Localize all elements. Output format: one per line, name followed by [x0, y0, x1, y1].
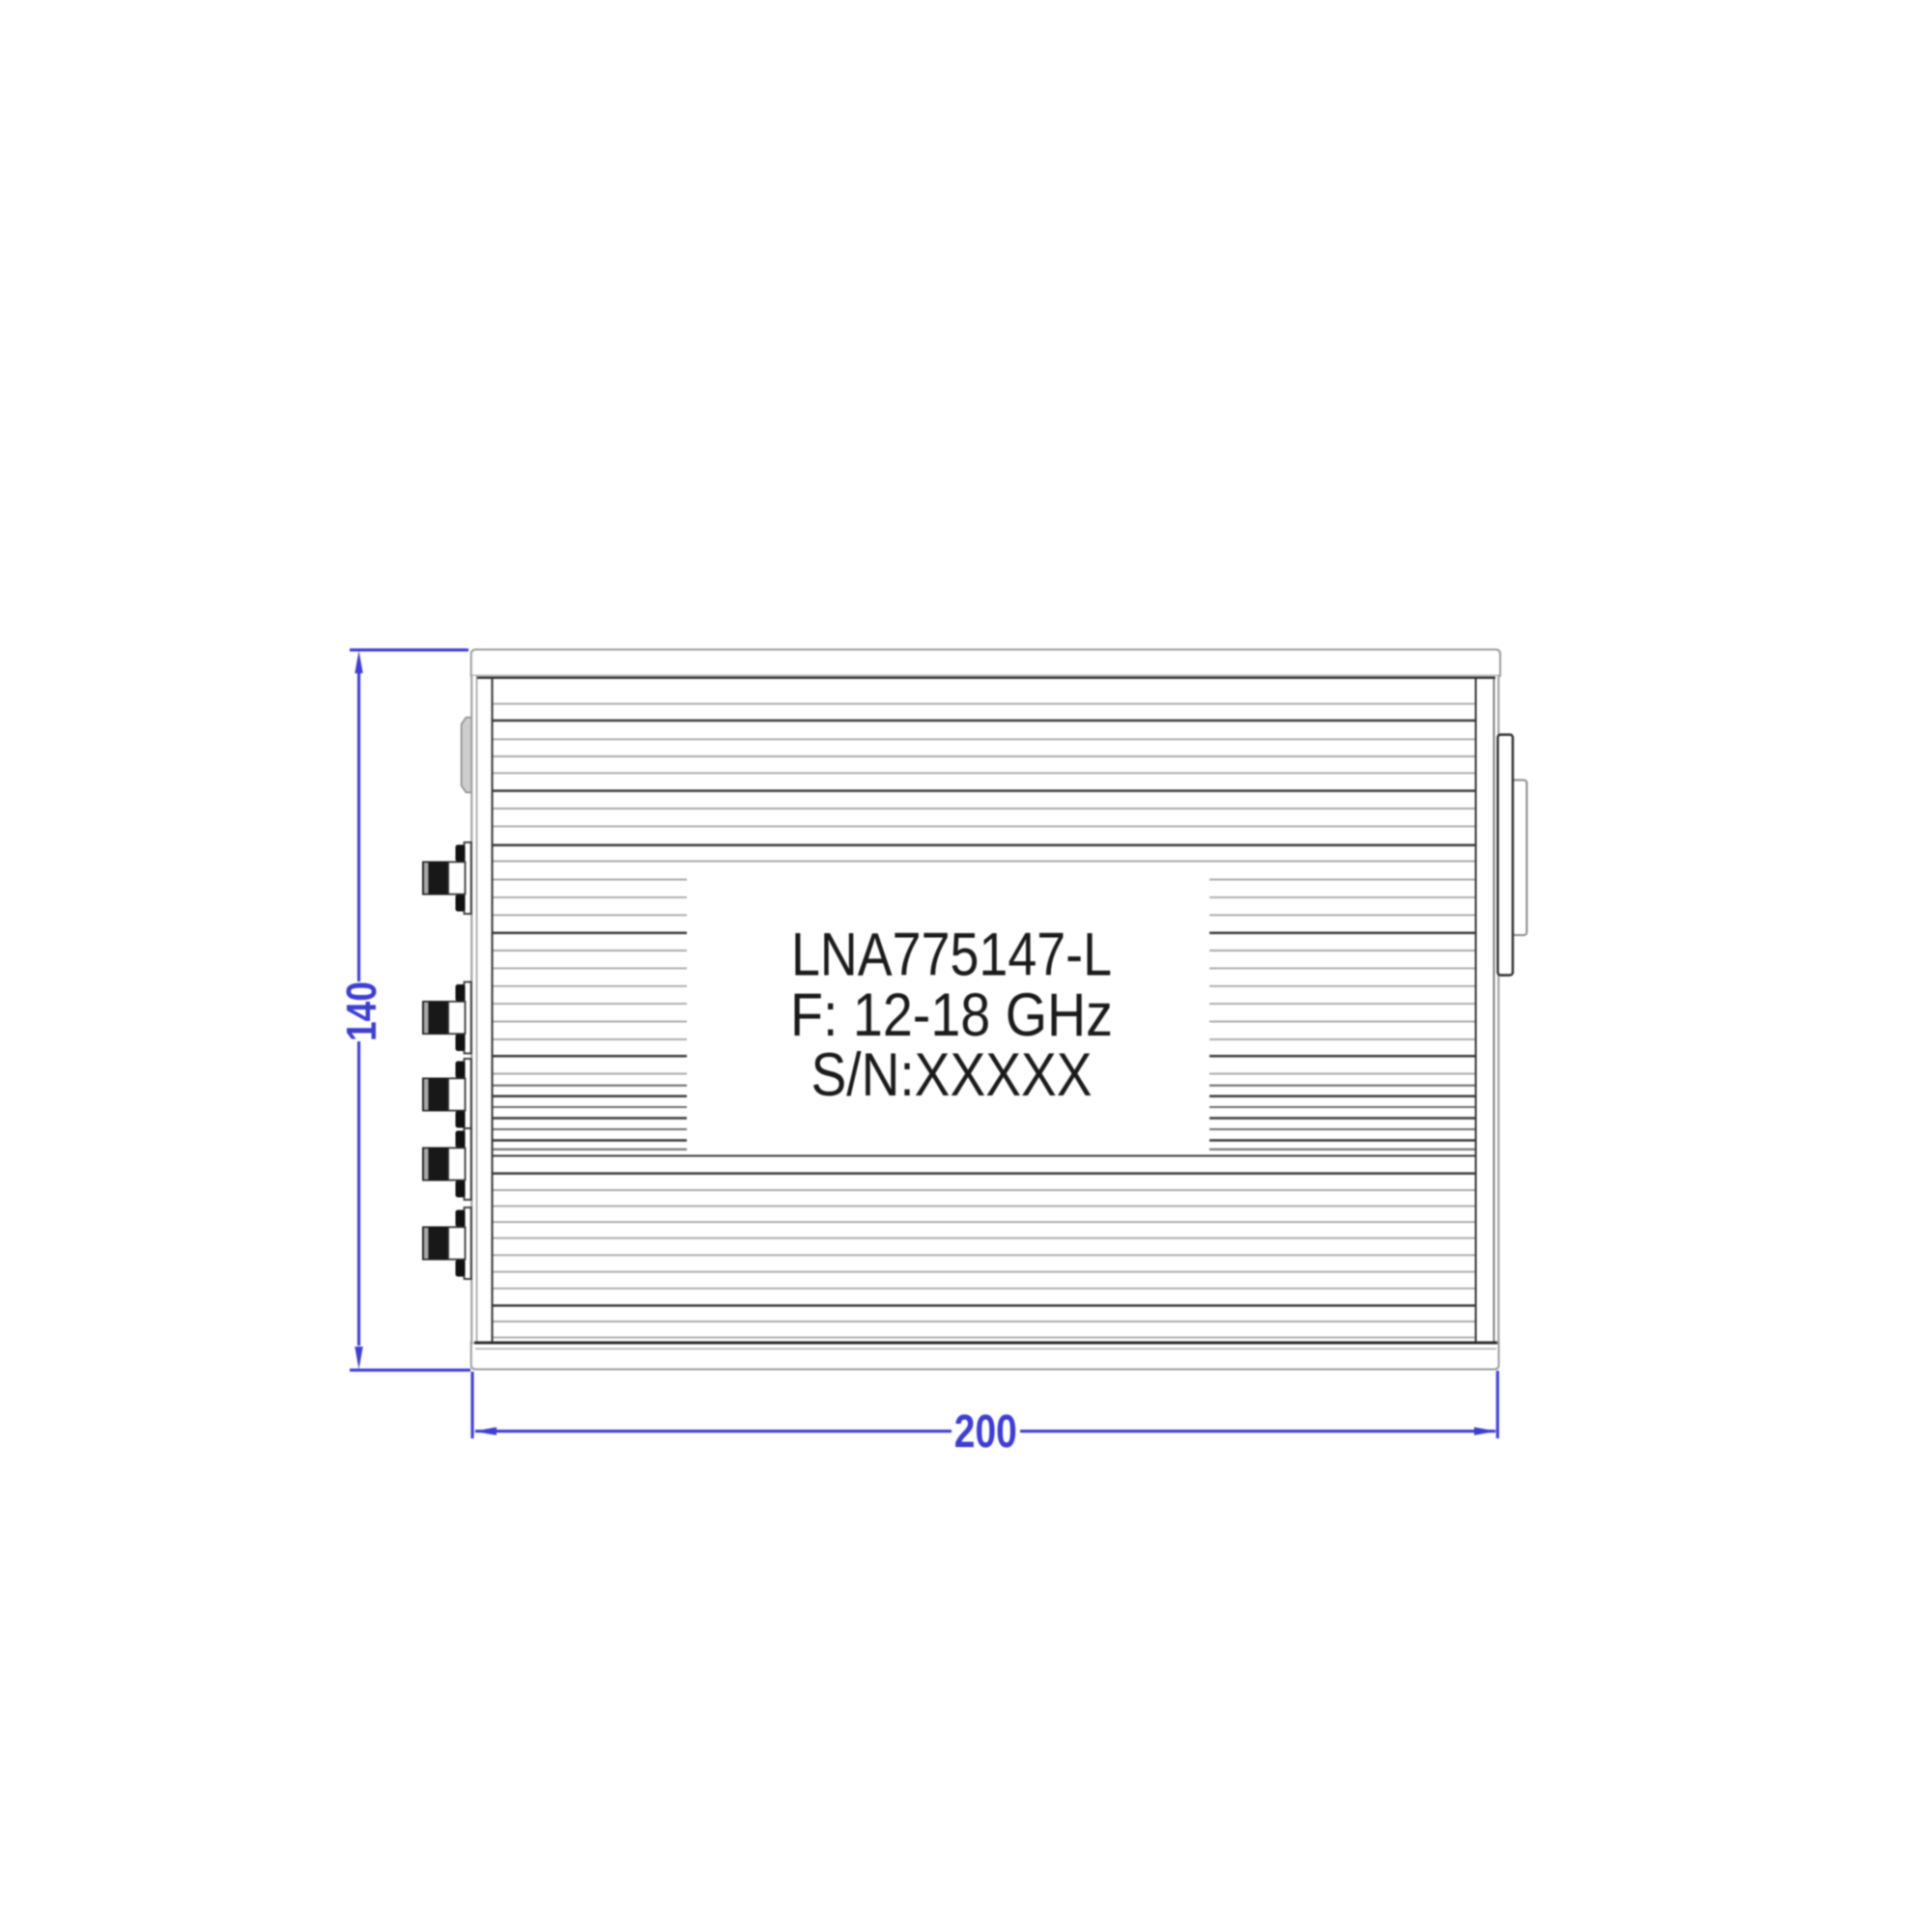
svg-text:LNA775147-L: LNA775147-L [791, 922, 1112, 989]
svg-text:F: 12-18 GHz: F: 12-18 GHz [790, 981, 1113, 1049]
svg-text:200: 200 [954, 1406, 1017, 1458]
svg-text:S/N:XXXXX: S/N:XXXXX [811, 1041, 1093, 1109]
svg-text:140: 140 [338, 981, 385, 1041]
